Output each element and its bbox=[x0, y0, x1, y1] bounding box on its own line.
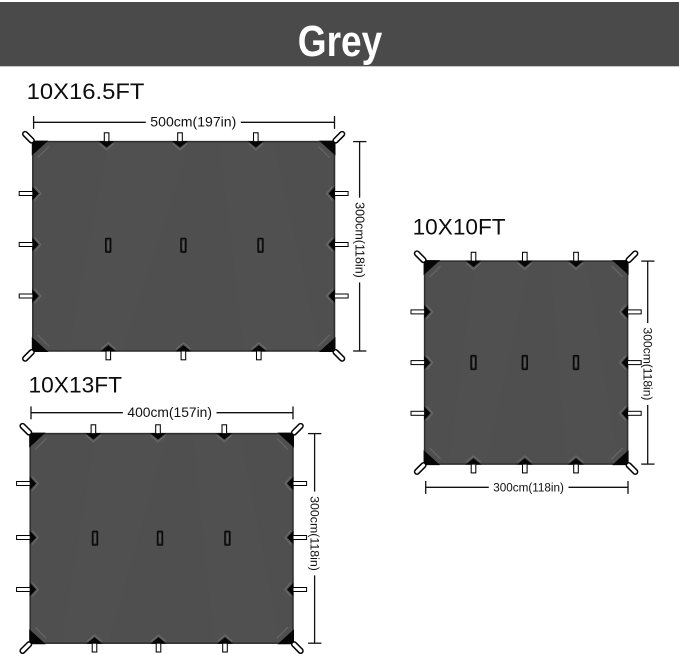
svg-text:300cm(118in): 300cm(118in) bbox=[308, 496, 322, 571]
svg-text:300cm(118in): 300cm(118in) bbox=[641, 328, 655, 401]
svg-text:10X13FT: 10X13FT bbox=[29, 372, 123, 397]
svg-text:300cm(118in): 300cm(118in) bbox=[353, 202, 367, 278]
svg-text:500cm(197in): 500cm(197in) bbox=[150, 114, 236, 130]
svg-text:10X10FT: 10X10FT bbox=[413, 215, 506, 240]
svg-text:Grey: Grey bbox=[298, 18, 383, 66]
svg-text:400cm(157in): 400cm(157in) bbox=[127, 405, 212, 420]
svg-text:300cm(118in): 300cm(118in) bbox=[493, 481, 564, 495]
svg-text:10X16.5FT: 10X16.5FT bbox=[27, 79, 145, 104]
